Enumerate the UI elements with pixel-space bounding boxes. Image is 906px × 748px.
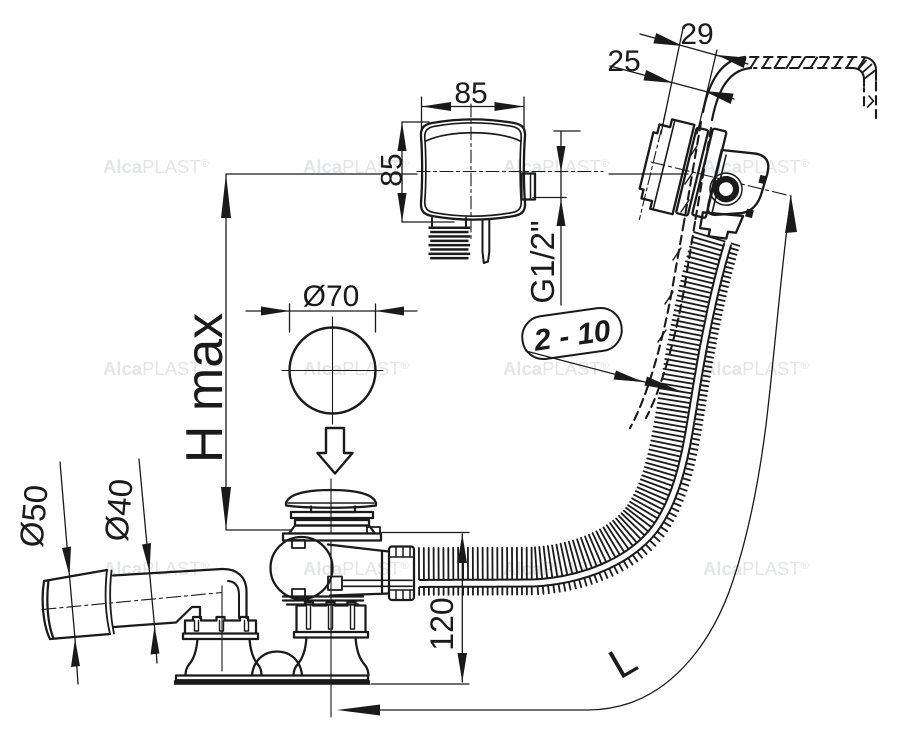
svg-text:AlcaPLAST®: AlcaPLAST® bbox=[303, 358, 409, 379]
svg-text:AlcaPLAST®: AlcaPLAST® bbox=[303, 558, 409, 579]
svg-text:85: 85 bbox=[454, 77, 487, 110]
svg-text:AlcaPLAST®: AlcaPLAST® bbox=[703, 558, 809, 579]
svg-text:G1/2": G1/2" bbox=[524, 220, 561, 303]
svg-text:Ø40: Ø40 bbox=[97, 477, 139, 542]
svg-text:29: 29 bbox=[680, 18, 713, 51]
svg-text:85: 85 bbox=[376, 153, 409, 186]
svg-text:25: 25 bbox=[607, 45, 640, 78]
svg-text:Ø70: Ø70 bbox=[303, 280, 360, 313]
svg-text:AlcaPLAST®: AlcaPLAST® bbox=[503, 156, 609, 177]
svg-text:H max: H max bbox=[176, 313, 234, 463]
svg-text:AlcaPLAST®: AlcaPLAST® bbox=[103, 156, 209, 177]
svg-text:AlcaPLAST®: AlcaPLAST® bbox=[703, 358, 809, 379]
svg-text:Ø50: Ø50 bbox=[12, 483, 54, 548]
svg-text:120: 120 bbox=[424, 597, 460, 650]
